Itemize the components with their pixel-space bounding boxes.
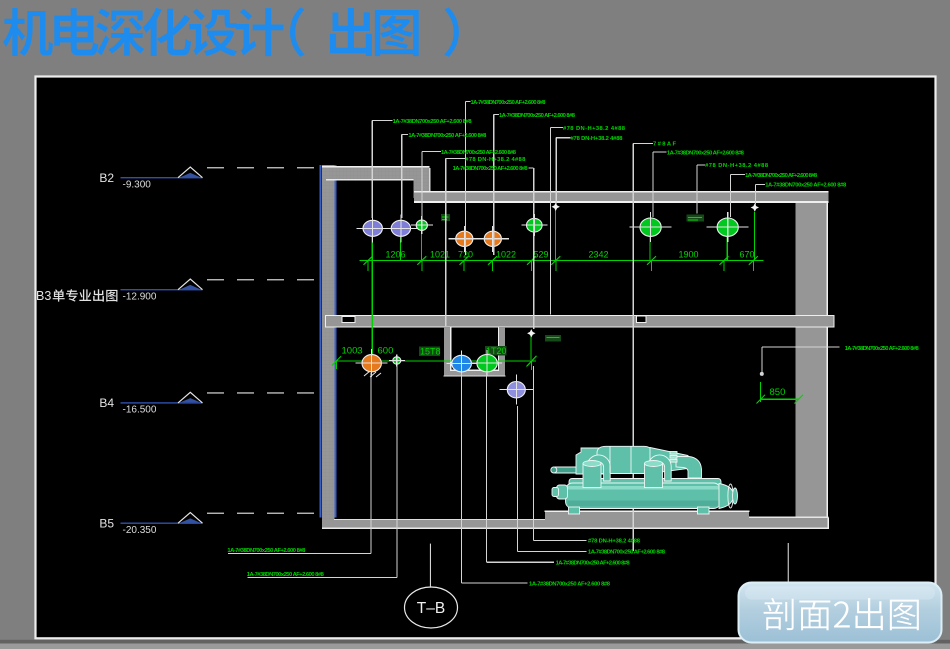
svg-text:#78 DN-H+38.2 4#88: #78 DN-H+38.2 4#88 xyxy=(588,539,641,545)
svg-text:B3: B3 xyxy=(36,289,51,303)
svg-text:1206: 1206 xyxy=(386,250,406,260)
svg-text:1A-7#38DN700x250 AF+2.600 8#: 1A-7#38DN700x250 AF+2.600 8#8 xyxy=(247,572,325,578)
svg-text:#78 DN-H+38.2 4#88: #78 DN-H+38.2 4#88 xyxy=(571,136,624,142)
svg-text:B5: B5 xyxy=(99,516,114,530)
svg-text:1A-7#38DN700x250 AF+2.600 8#: 1A-7#38DN700x250 AF+2.600 8#8 xyxy=(667,150,745,156)
svg-text:670: 670 xyxy=(740,250,755,260)
svg-text:1A-7#38DN700x250 AF+2.600 8#: 1A-7#38DN700x250 AF+2.600 8#8 xyxy=(393,119,473,125)
svg-text:1A-7#38DN700x250 AF+2.600 8#: 1A-7#38DN700x250 AF+2.600 8#8 xyxy=(745,173,818,179)
svg-text:1A-7#38DN700x250 AF+2.600 8#: 1A-7#38DN700x250 AF+2.600 8#8 xyxy=(441,150,517,156)
svg-text:B4: B4 xyxy=(99,396,114,410)
svg-text:1A-7#38DN700x250 AF+2.600 8#: 1A-7#38DN700x250 AF+2.600 8#8 xyxy=(529,581,611,587)
svg-text:1A-7#38DN700x250 AF+2.600 8#: 1A-7#38DN700x250 AF+2.600 8#8 xyxy=(556,560,631,566)
svg-text:1A-7#38DN700x250 AF+2.600 8#: 1A-7#38DN700x250 AF+2.600 8#8 xyxy=(765,183,847,189)
svg-text:1A-7#38DN700x250 AF+2.600 8#: 1A-7#38DN700x250 AF+2.600 8#8 xyxy=(408,133,487,139)
svg-text:1A-7#38DN700x250 AF+2.600 8#: 1A-7#38DN700x250 AF+2.600 8#8 xyxy=(588,550,666,556)
svg-text:1022: 1022 xyxy=(496,250,516,260)
svg-text:850: 850 xyxy=(770,387,786,398)
svg-text:#78 DN-H+38.2 4#88: #78 DN-H+38.2 4#88 xyxy=(705,163,769,169)
svg-text:1003: 1003 xyxy=(342,346,363,357)
svg-text:1A-7#38DN700x250 AF+2.600 8#: 1A-7#38DN700x250 AF+2.600 8#8 xyxy=(845,346,920,352)
svg-text:1900: 1900 xyxy=(679,250,699,260)
svg-text:15T8: 15T8 xyxy=(420,347,441,357)
svg-text:-16.500: -16.500 xyxy=(123,405,157,416)
svg-text:-20.350: -20.350 xyxy=(123,525,157,536)
svg-text:529: 529 xyxy=(534,250,549,260)
svg-text:2342: 2342 xyxy=(589,250,609,260)
svg-text:-9.300: -9.300 xyxy=(123,180,152,191)
svg-text:1A-7#38DN700x250 AF+2.600 8#: 1A-7#38DN700x250 AF+2.600 8#8 xyxy=(471,100,547,106)
svg-text:T–B: T–B xyxy=(417,600,445,617)
svg-text:B2: B2 xyxy=(99,171,114,185)
svg-text:1A-7#38DN700x250 AF+2.600 8#: 1A-7#38DN700x250 AF+2.600 8#8 xyxy=(499,113,576,119)
svg-text:#78 DN-H+38.2 4#88: #78 DN-H+38.2 4#88 xyxy=(465,157,526,163)
svg-text:1A-7#38DN700x250 AF+2.600 8#: 1A-7#38DN700x250 AF+2.600 8#8 xyxy=(227,548,306,554)
svg-text:1021: 1021 xyxy=(430,250,450,260)
svg-text:-12.900: -12.900 xyxy=(123,292,157,303)
svg-text:600: 600 xyxy=(378,346,394,357)
svg-text:1A-7#38DN700x250 AF+2.600 8#: 1A-7#38DN700x250 AF+2.600 8#8 xyxy=(453,166,529,172)
svg-text:#78 DN-H+38.2 4#88: #78 DN-H+38.2 4#88 xyxy=(563,126,626,132)
